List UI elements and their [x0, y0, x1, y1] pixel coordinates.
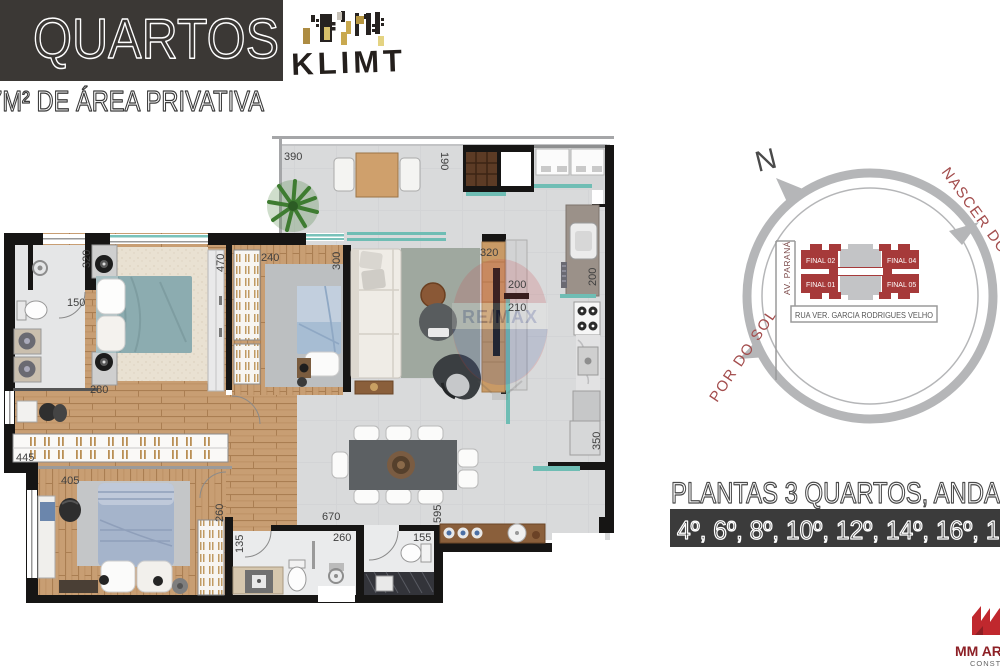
svg-text:MM AR: MM AR [955, 643, 1000, 659]
svg-text:RE/MAX: RE/MAX [462, 307, 538, 327]
svg-text:FINAL 05: FINAL 05 [887, 282, 916, 289]
svg-text:350: 350 [591, 432, 603, 450]
svg-text:RUA VER. GARCIA RODRIGUES VELH: RUA VER. GARCIA RODRIGUES VELHO [795, 310, 933, 320]
svg-text:N: N [752, 143, 780, 179]
svg-text:200: 200 [508, 279, 526, 291]
svg-text:200: 200 [587, 268, 599, 286]
svg-text:155: 155 [413, 532, 431, 544]
svg-text:AV. PARANÁ: AV. PARANÁ [782, 241, 792, 295]
svg-text:300: 300 [331, 252, 343, 270]
svg-text:97M² DE ÁREA PRIVATIVA: 97M² DE ÁREA PRIVATIVA [0, 85, 265, 118]
svg-text:595: 595 [432, 505, 444, 523]
svg-text:405: 405 [61, 475, 79, 487]
svg-text:260: 260 [214, 504, 226, 522]
svg-text:320: 320 [81, 250, 93, 268]
svg-text:320: 320 [480, 247, 498, 259]
svg-text:210: 210 [508, 302, 526, 314]
svg-text:POR DO SOL: POR DO SOL [706, 306, 781, 405]
svg-text:670: 670 [322, 511, 340, 523]
svg-text:390: 390 [284, 151, 302, 163]
svg-text:PLANTAS 3 QUARTOS, ANDARES: PLANTAS 3 QUARTOS, ANDARES [671, 477, 1000, 510]
svg-text:4º, 6º, 8º, 10º, 12º, 14º, 16º: 4º, 6º, 8º, 10º, 12º, 14º, 16º, 18º, [677, 515, 1000, 545]
svg-text:KLIMT: KLIMT [291, 43, 407, 82]
svg-text:QUARTOS: QUARTOS [33, 7, 279, 71]
svg-text:FINAL 02: FINAL 02 [806, 258, 835, 265]
svg-text:150: 150 [67, 297, 85, 309]
svg-text:470: 470 [215, 254, 227, 272]
svg-text:240: 240 [261, 252, 279, 264]
svg-text:445: 445 [16, 452, 34, 464]
svg-text:190: 190 [438, 152, 450, 170]
svg-text:135: 135 [234, 535, 246, 553]
svg-text:FINAL 04: FINAL 04 [887, 258, 916, 265]
svg-text:260: 260 [333, 532, 351, 544]
svg-text:FINAL 01: FINAL 01 [806, 282, 835, 289]
svg-text:CONSTR: CONSTR [970, 659, 1000, 667]
svg-text:280: 280 [90, 384, 108, 396]
